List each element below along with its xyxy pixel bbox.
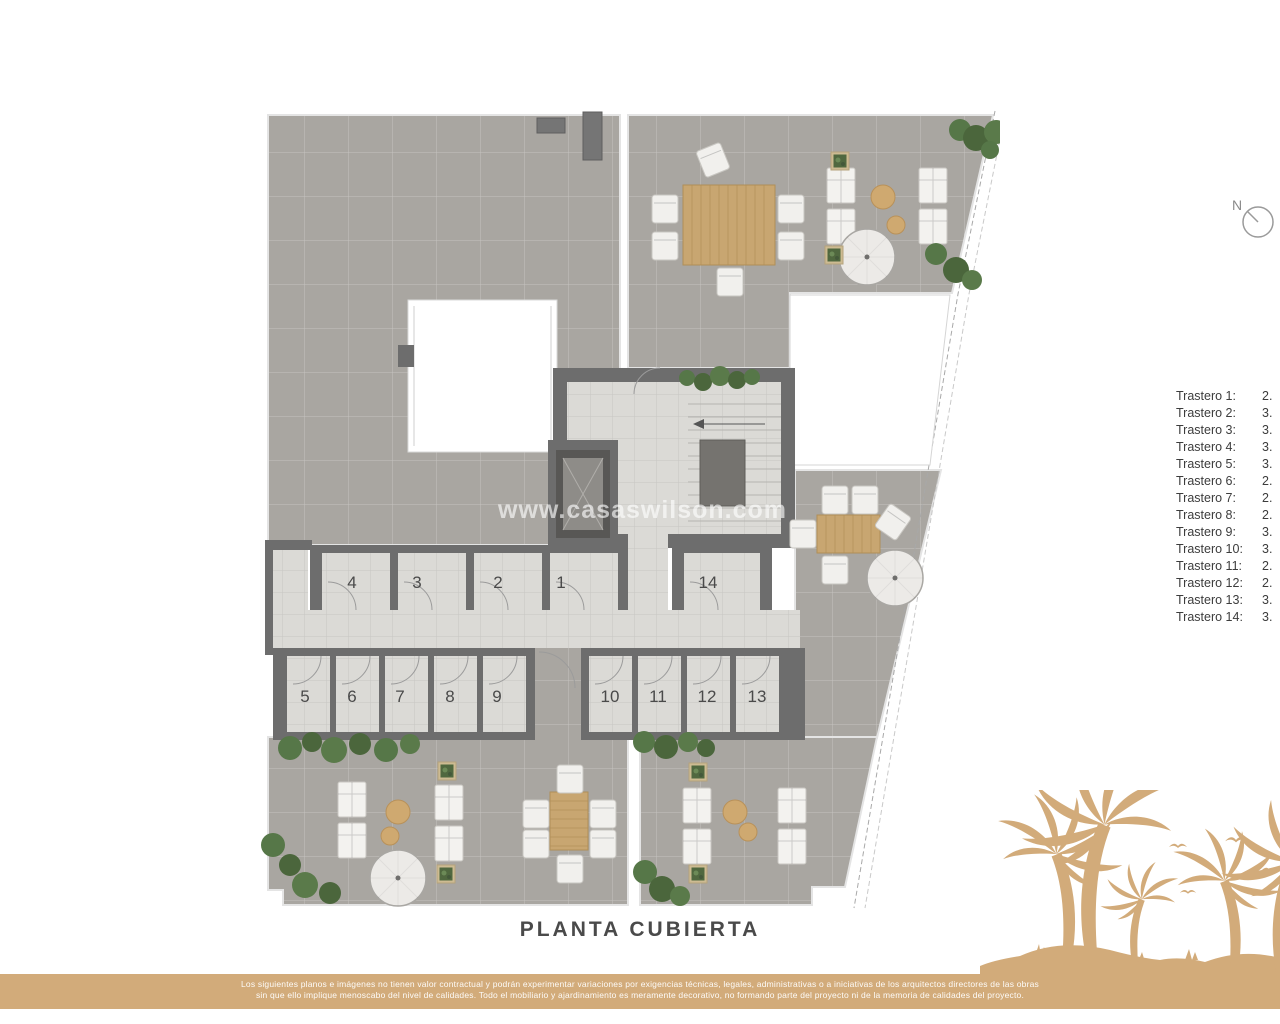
legend-row: Trastero 6:2. xyxy=(1176,473,1280,490)
patio-void xyxy=(398,300,557,452)
corridor xyxy=(273,610,800,648)
roof-vent xyxy=(537,118,565,133)
legend-label: Trastero 2: xyxy=(1176,406,1236,420)
room-label-8: 8 xyxy=(445,687,454,706)
room-label-12: 12 xyxy=(698,687,717,706)
dining-table xyxy=(817,515,880,553)
legend-row: Trastero 12:2. xyxy=(1176,575,1280,592)
legend-value: 3. xyxy=(1262,456,1272,473)
legend-label: Trastero 6: xyxy=(1176,474,1236,488)
legend-value: 2. xyxy=(1262,490,1272,507)
floor-plan: 4 3 2 1 14 5 6 7 8 9 10 11 12 13 xyxy=(260,108,1000,913)
room-label-6: 6 xyxy=(347,687,356,706)
storage-upper-block xyxy=(310,545,648,618)
dining-table xyxy=(550,792,588,850)
legend-label: Trastero 5: xyxy=(1176,457,1236,471)
corridor-end-wall xyxy=(265,540,273,655)
lobby xyxy=(628,382,668,648)
legend-value: 2. xyxy=(1262,507,1272,524)
legend-row: Trastero 1:2. xyxy=(1176,388,1280,405)
disclaimer-line-1: Los siguientes planos e imágenes no tien… xyxy=(0,979,1280,990)
legend-label: Trastero 9: xyxy=(1176,525,1236,539)
corridor-nook xyxy=(273,548,308,612)
legend-value: 2. xyxy=(1262,575,1272,592)
legend-label: Trastero 8: xyxy=(1176,508,1236,522)
legend-row: Trastero 3:3. xyxy=(1176,422,1280,439)
legend-value: 3. xyxy=(1262,609,1272,626)
core-block xyxy=(548,366,795,548)
legend-label: Trastero 3: xyxy=(1176,423,1236,437)
legend-label: Trastero 13: xyxy=(1176,593,1243,607)
room-label-11: 11 xyxy=(649,687,667,706)
dining-table xyxy=(683,185,775,265)
corridor-top-wall xyxy=(265,540,312,550)
legend-value: 3. xyxy=(1262,524,1272,541)
legend-value: 3. xyxy=(1262,422,1272,439)
terrace-bottom-right xyxy=(640,737,877,905)
elevator xyxy=(548,440,618,548)
legend-value: 3. xyxy=(1262,405,1272,422)
legend-value: 3. xyxy=(1262,592,1272,609)
legend-row: Trastero 14:3. xyxy=(1176,609,1280,626)
room-label-5: 5 xyxy=(300,687,309,706)
room-label-10: 10 xyxy=(601,687,620,706)
north-label: N xyxy=(1232,197,1242,213)
legend-row: Trastero 9:3. xyxy=(1176,524,1280,541)
legend-value: 2. xyxy=(1262,388,1272,405)
room-label-4: 4 xyxy=(347,573,356,592)
legend-label: Trastero 12: xyxy=(1176,576,1243,590)
north-needle xyxy=(1247,211,1258,222)
exit-passage xyxy=(535,648,581,740)
legend-row: Trastero 11:2. xyxy=(1176,558,1280,575)
legend-row: Trastero 13:3. xyxy=(1176,592,1280,609)
legend-label: Trastero 1: xyxy=(1176,389,1236,403)
room-label-13: 13 xyxy=(748,687,767,706)
legend-row: Trastero 4:3. xyxy=(1176,439,1280,456)
disclaimer-bar: Los siguientes planos e imágenes no tien… xyxy=(0,974,1280,1009)
void-right xyxy=(790,295,950,465)
room-label-9: 9 xyxy=(492,687,501,706)
legend-row: Trastero 2:3. xyxy=(1176,405,1280,422)
legend-label: Trastero 4: xyxy=(1176,440,1236,454)
disclaimer-line-2: sin que ello implique menoscabo del nive… xyxy=(0,990,1280,1001)
legend-label: Trastero 10: xyxy=(1176,542,1243,556)
storage-room14-block xyxy=(672,545,772,618)
palm-trees-illustration xyxy=(980,790,1280,974)
legend-label: Trastero 11: xyxy=(1176,559,1242,573)
north-indicator: N xyxy=(1226,192,1280,248)
legend-row: Trastero 8:2. xyxy=(1176,507,1280,524)
legend-label: Trastero 7: xyxy=(1176,491,1236,505)
legend-value: 3. xyxy=(1262,541,1272,558)
page: { "title": { "text": "PLANTA CUBIERTA" }… xyxy=(0,0,1280,1024)
legend-value: 3. xyxy=(1262,439,1272,456)
legend-value: 2. xyxy=(1262,558,1272,575)
legend-label: Trastero 14: xyxy=(1176,610,1243,624)
room-label-7: 7 xyxy=(395,687,404,706)
chimney xyxy=(583,112,602,160)
legend-row: Trastero 7:2. xyxy=(1176,490,1280,507)
legend-row: Trastero 5:3. xyxy=(1176,456,1280,473)
room-label-14: 14 xyxy=(699,573,718,592)
room-label-2: 2 xyxy=(493,573,502,592)
storage-legend: Trastero 1:2. Trastero 2:3. Trastero 3:3… xyxy=(1176,388,1280,626)
legend-row: Trastero 10:3. xyxy=(1176,541,1280,558)
room-label-1: 1 xyxy=(556,573,565,592)
legend-value: 2. xyxy=(1262,473,1272,490)
room-label-3: 3 xyxy=(412,573,421,592)
